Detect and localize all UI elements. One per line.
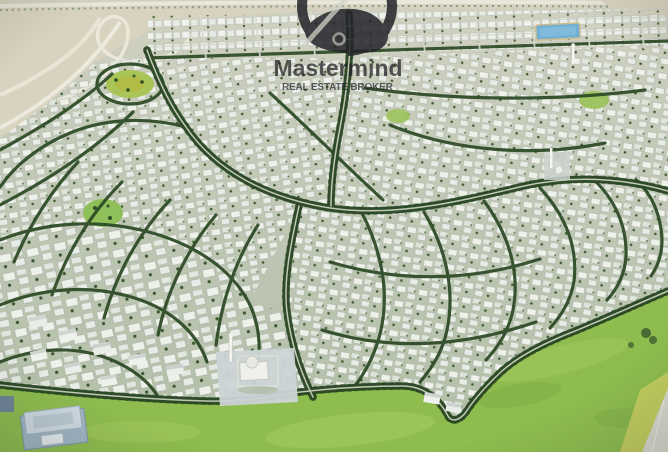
watermark-brand: Mastermind <box>273 55 402 81</box>
watermark-tagline: REAL ESTATE BROKER <box>282 82 394 93</box>
masterplan-scene: Mastermind REAL ESTATE BROKER <box>0 0 668 452</box>
aerial-masterplan-render: Mastermind REAL ESTATE BROKER <box>0 0 668 452</box>
